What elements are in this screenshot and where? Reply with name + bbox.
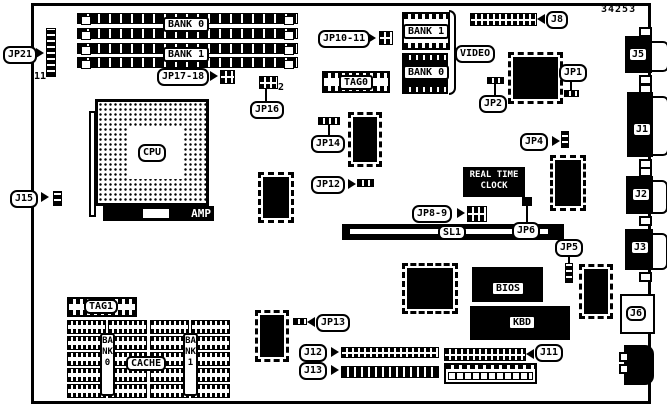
jp8-9-jumper	[467, 206, 487, 222]
simm-clip-icon	[284, 16, 294, 25]
video-bank1-label: BANK 1	[403, 24, 449, 39]
tag1-label: TAG1	[84, 299, 118, 314]
mount-tab	[639, 272, 652, 282]
bios-label: BIOS	[491, 281, 525, 296]
mount-tab	[639, 27, 652, 37]
jp1-callout: JP1	[559, 64, 587, 82]
ic-chip	[579, 264, 613, 319]
jp16-jumper	[259, 76, 278, 89]
simm-clip-icon	[81, 60, 91, 69]
rtc-label-line2: CLOCK	[463, 181, 525, 192]
cpu-label: CPU	[138, 144, 166, 162]
cache-chip	[67, 320, 106, 334]
j15-jumper	[53, 191, 62, 206]
chipset-chip	[508, 52, 563, 104]
j5-label: J5	[628, 47, 648, 62]
callout-tail	[210, 71, 218, 81]
jp21-header	[46, 28, 56, 77]
rtc-label-line1: REAL TIME	[463, 170, 525, 181]
cache-chip	[191, 320, 230, 334]
j8-header	[470, 13, 537, 26]
ic-chip	[348, 112, 382, 167]
mount-tab	[639, 167, 652, 177]
simm-clip-icon	[284, 46, 294, 55]
jp6-jumper	[522, 197, 532, 206]
leader-line	[526, 206, 528, 223]
j12-header	[341, 347, 439, 358]
ic-chip	[255, 310, 289, 362]
video-bank0-label: BANK 0	[403, 65, 449, 80]
jp16-callout: JP16	[250, 101, 284, 119]
jp5-callout: JP5	[555, 239, 583, 257]
j6-label: J6	[626, 306, 646, 321]
callout-tail	[36, 48, 44, 58]
part-number: 34253	[601, 4, 636, 15]
j11-header	[444, 348, 526, 361]
callout-tail	[331, 347, 339, 357]
callout-tail	[41, 192, 49, 202]
simm-bank0-label: BANK 0	[163, 17, 209, 32]
power-pin-row	[448, 372, 533, 380]
callout-tail	[331, 365, 339, 375]
sl1-label: SL1	[438, 225, 466, 240]
mount-tab	[639, 84, 652, 94]
jp12-callout: JP12	[311, 176, 345, 194]
jp12-jumper	[357, 179, 374, 187]
cache-bank1-label: BANK1	[183, 333, 198, 396]
j5-dsub-outline	[650, 41, 667, 72]
callout-tail	[526, 349, 534, 359]
jp13-callout: JP13	[316, 314, 350, 332]
tag0-label: TAG0	[339, 75, 373, 90]
jp8-9-callout: JP8-9	[412, 205, 452, 223]
cache-label: CACHE	[126, 356, 166, 371]
power-connector	[444, 363, 537, 384]
motherboard-diagram: 34253 BANK 0 BANK 1 JP21 11 J15 CPU AMP …	[0, 0, 667, 416]
rtc-chip: REAL TIME CLOCK	[463, 167, 525, 197]
jp4-callout: JP4	[520, 133, 548, 151]
jp16-pin-label: 2	[278, 82, 284, 93]
j3-label: J3	[630, 240, 650, 255]
simm-clip-icon	[284, 31, 294, 40]
j15-callout: J15	[10, 190, 38, 208]
jp5-jumper	[565, 263, 573, 283]
simm-clip-icon	[81, 16, 91, 25]
jp6-callout: JP6	[512, 222, 540, 240]
jp17-18-callout: JP17-18	[157, 68, 209, 86]
din-pin	[619, 364, 629, 374]
j1-label: J1	[632, 122, 652, 137]
mount-tab	[639, 216, 652, 226]
jp10-11-callout: JP10-11	[318, 30, 370, 48]
simm-clip-icon	[284, 60, 294, 69]
simm-clip-icon	[81, 46, 91, 55]
callout-tail	[552, 136, 560, 146]
callout-tail	[457, 208, 465, 218]
ic-chip	[402, 263, 458, 314]
j12-callout: J12	[299, 344, 327, 362]
cache-chip	[150, 320, 189, 334]
jp21-pin1-label: 11	[34, 71, 46, 82]
kbd-label: KBD	[508, 315, 536, 330]
jp2-jumper	[487, 77, 504, 84]
amp-brand-label: AMP	[191, 207, 211, 220]
jp21-callout: JP21	[3, 46, 37, 64]
video-callout: VIDEO	[455, 45, 495, 63]
jp2-callout: JP2	[479, 95, 507, 113]
j11-callout: J11	[535, 344, 563, 362]
jp13-jumper	[293, 318, 307, 325]
j2-label: J2	[631, 187, 651, 202]
jp14-callout: JP14	[311, 135, 345, 153]
jp17-18-jumper	[220, 70, 235, 84]
j13-header	[341, 366, 439, 378]
simm-bank1-label: BANK 1	[163, 47, 209, 62]
jp10-11-jumper	[379, 31, 393, 45]
din-pin	[619, 352, 629, 362]
ic-chip	[550, 155, 586, 211]
jp14-jumper	[318, 117, 340, 125]
callout-tail	[537, 14, 545, 24]
cache-bank0-label: BANK0	[100, 333, 115, 396]
amp-socket-lever: AMP	[103, 206, 214, 221]
jp4-jumper	[561, 131, 569, 148]
ic-chip	[258, 172, 294, 223]
callout-tail	[307, 317, 315, 327]
callout-tail	[348, 179, 356, 189]
cache-chip	[108, 320, 147, 334]
jp1-jumper	[564, 90, 579, 97]
j13-callout: J13	[299, 362, 327, 380]
simm-clip-icon	[81, 31, 91, 40]
amp-lever-slot	[143, 209, 169, 218]
j8-callout: J8	[546, 11, 568, 29]
